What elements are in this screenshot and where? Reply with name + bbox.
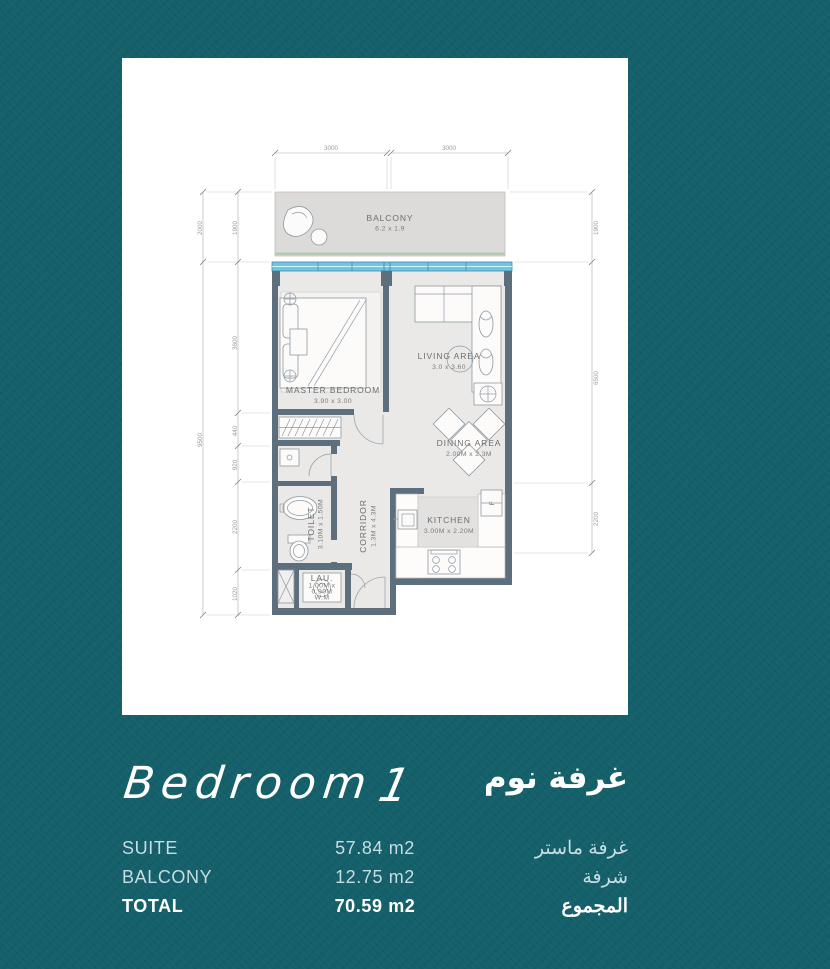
table-row-suite: SUITE 57.84 m2 غرفة ماستر (122, 834, 628, 863)
corridor-label: CORRIDOR (358, 499, 368, 552)
title-row: Bedroom 1 غرفة نوم (122, 758, 628, 818)
page-title: Bedroom (121, 758, 376, 809)
row-label-arabic: المجموع (443, 895, 628, 918)
corridor-dims: 1.3M x 4.3M (371, 505, 378, 547)
master-bedroom-label: MASTER BEDROOM (286, 385, 380, 395)
page-title-arabic: غرفة نوم (484, 760, 628, 796)
fridge-icon: F (481, 490, 502, 516)
row-label: TOTAL (122, 896, 307, 917)
dim-left-inner-3: 920 (232, 459, 239, 470)
floorplan-drawing: F (122, 58, 628, 715)
dim-left-inner-2: 440 (232, 425, 239, 436)
wall-toilet-right-a (331, 446, 337, 454)
bed-icon (280, 292, 381, 392)
balcony-edge-strip (275, 253, 505, 256)
wardrobe-icon (279, 417, 341, 438)
wall-laundry-left (294, 570, 299, 608)
wall-toilet-right-b (331, 476, 337, 540)
wall-shower-toilet (278, 481, 337, 486)
dim-left-outer-1: 9500 (197, 433, 204, 448)
wall-bottom-corridor (272, 608, 396, 615)
wall-bedroom-bottom (278, 409, 354, 415)
row-label: SUITE (122, 838, 307, 859)
page-title-number: 1 (374, 758, 415, 812)
wall-stub-middle (381, 271, 392, 286)
wall-stub-right (504, 271, 512, 286)
master-bedroom-dims: 3.90 x 3.00 (314, 398, 352, 405)
wall-stub-left (272, 271, 280, 286)
ceiling-light-icon (284, 293, 296, 305)
row-value: 12.75 m2 (307, 867, 443, 888)
wall-wardrobe-bottom (272, 440, 340, 446)
row-label-arabic: غرفة ماستر (443, 837, 628, 860)
summary-section: Bedroom 1 غرفة نوم SUITE 57.84 m2 غرفة م… (122, 758, 628, 921)
wall-kitchen-top (390, 488, 424, 494)
dim-left-inner-5: 1020 (232, 587, 239, 602)
kitchen-label: KITCHEN (427, 515, 471, 525)
wall-laundry-right (345, 570, 351, 608)
dim-right-0: 1900 (593, 221, 600, 236)
dining-area-dims: 2.00M x 2.3M (446, 451, 492, 458)
dim-top-0: 3000 (324, 145, 339, 152)
dim-left-inner-4: 2200 (232, 520, 239, 535)
dim-right-2: 2200 (593, 512, 600, 527)
floorplan-card: F (122, 58, 628, 715)
dim-top-1: 3000 (442, 145, 457, 152)
table-row-total: TOTAL 70.59 m2 المجموع (122, 892, 628, 921)
wall-bedroom-living (383, 284, 389, 412)
dim-left-inner-0: 1900 (232, 221, 239, 236)
ac-unit-icon (474, 383, 502, 405)
shaft-icon (278, 570, 294, 603)
kitchen-dims: 3.00M x 2.20M (424, 528, 474, 535)
dining-area-label: DINING AREA (437, 438, 502, 448)
table-row-balcony: BALCONY 12.75 m2 شرفة (122, 863, 628, 892)
area-table: SUITE 57.84 m2 غرفة ماستر BALCONY 12.75 … (122, 834, 628, 921)
stove-icon (428, 550, 460, 574)
balcony-label: BALCONY (367, 213, 414, 223)
laundry-dims-3: W.M (315, 595, 330, 602)
living-area-label: LIVING AREA (418, 351, 481, 361)
fridge-label: F (489, 501, 496, 506)
row-value: 70.59 m2 (307, 896, 443, 917)
row-label-arabic: شرفة (443, 866, 628, 889)
living-area-dims: 3.0 x 3.60 (432, 364, 466, 371)
wall-toilet-bottom (272, 563, 352, 570)
dim-right-1: 6500 (593, 371, 600, 386)
window-band (272, 262, 512, 271)
wall-corridor-right (390, 488, 396, 615)
toilet-label: TOILET (306, 506, 316, 541)
dim-left-outer-0: 2000 (197, 221, 204, 236)
toilet-dims: 3.10M x 1.50M (318, 499, 325, 549)
wall-right (505, 271, 512, 585)
shower-icon (280, 449, 299, 466)
laundry-label: LAU. (311, 573, 334, 583)
balcony-dims: 6.2 x 1.9 (375, 226, 405, 233)
row-label: BALCONY (122, 867, 307, 888)
wall-bottom-kitchen (390, 578, 512, 585)
ceiling-light-icon (284, 370, 296, 382)
row-value: 57.84 m2 (307, 838, 443, 859)
dim-left-inner-1: 3600 (232, 336, 239, 351)
brochure-page: { "plan": { "rooms": { "balcony": {"name… (0, 0, 830, 969)
